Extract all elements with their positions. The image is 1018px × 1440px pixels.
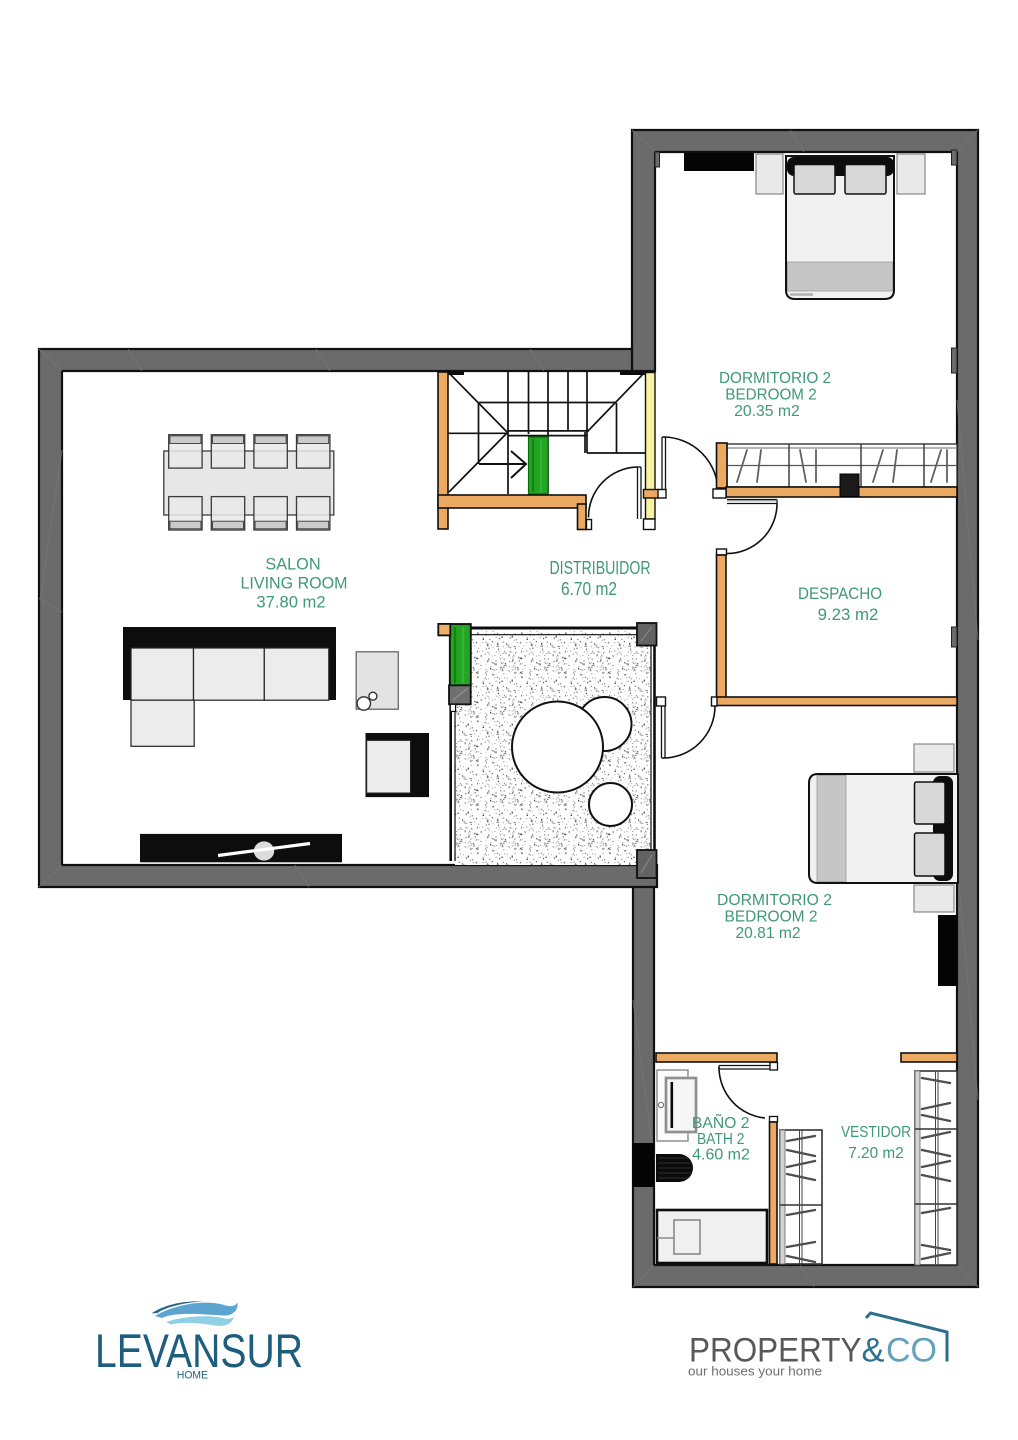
- svg-text:BAÑO 2: BAÑO 2: [692, 1115, 750, 1132]
- svg-text:20.81 m2: 20.81 m2: [736, 925, 801, 942]
- svg-text:SALON: SALON: [265, 555, 320, 573]
- svg-text:HOME: HOME: [177, 1370, 208, 1382]
- svg-text:DISTRIBUIDOR: DISTRIBUIDOR: [550, 558, 651, 578]
- svg-text:6.70 m2: 6.70 m2: [561, 579, 617, 599]
- svg-text:&: &: [862, 1331, 885, 1369]
- svg-text:DESPACHO: DESPACHO: [798, 585, 882, 603]
- svg-text:BEDROOM 2: BEDROOM 2: [725, 387, 816, 404]
- svg-text:4.60 m2: 4.60 m2: [692, 1147, 750, 1164]
- svg-text:VESTIDOR: VESTIDOR: [841, 1124, 911, 1141]
- svg-text:7.20 m2: 7.20 m2: [848, 1145, 904, 1162]
- svg-text:37.80 m2: 37.80 m2: [256, 593, 325, 611]
- svg-text:BATH 2: BATH 2: [697, 1131, 745, 1148]
- svg-text:9.23 m2: 9.23 m2: [818, 606, 879, 624]
- svg-text:LIVING ROOM: LIVING ROOM: [241, 574, 348, 592]
- svg-text:BEDROOM 2: BEDROOM 2: [725, 909, 818, 926]
- svg-text:CO: CO: [886, 1331, 937, 1369]
- svg-text:20.35 m2: 20.35 m2: [734, 403, 800, 420]
- svg-text:DORMITORIO 2: DORMITORIO 2: [717, 892, 832, 909]
- svg-text:DORMITORIO 2: DORMITORIO 2: [719, 370, 831, 387]
- svg-text:our houses your home: our houses your home: [688, 1365, 822, 1379]
